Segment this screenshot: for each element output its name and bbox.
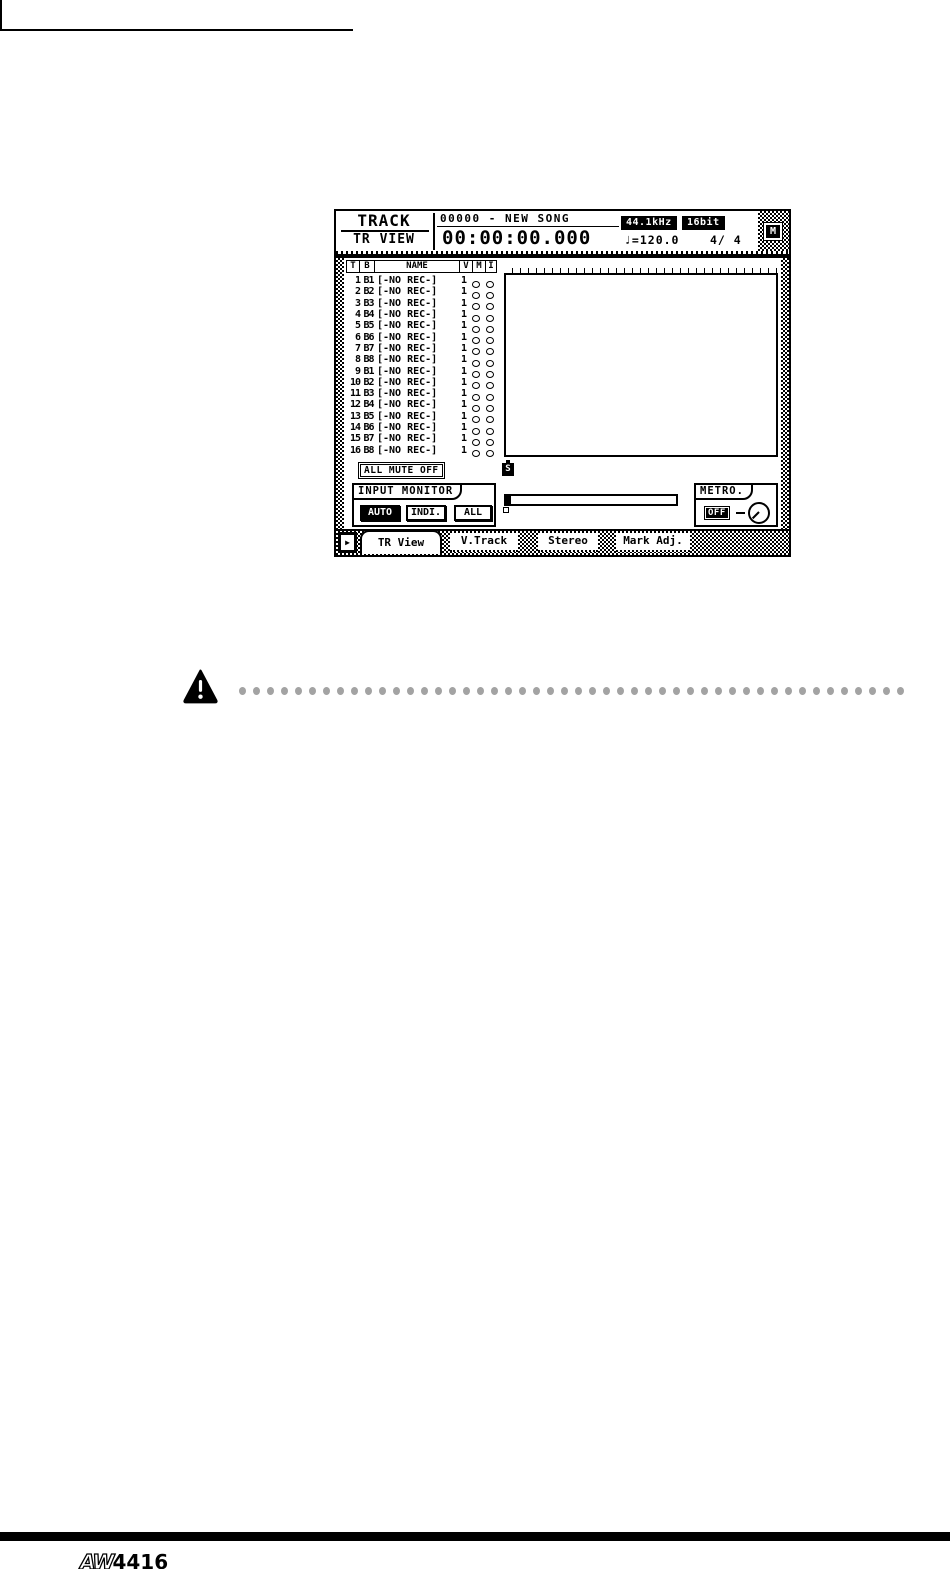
caution-dot [505, 687, 512, 695]
input-circle-icon [486, 281, 494, 288]
track-number: 10 [346, 377, 360, 388]
track-row[interactable]: 9B1[-NO REC-]1 [346, 365, 498, 376]
track-row[interactable]: 5B5[-NO REC-]1 [346, 320, 498, 331]
track-vtrack-number: 1 [461, 399, 469, 410]
track-bus: B3 [360, 298, 377, 309]
track-row[interactable]: 10B2[-NO REC-]1 [346, 377, 498, 388]
mute-circle-icon [472, 405, 480, 412]
tab-trview[interactable]: TR View [360, 530, 442, 554]
input-monitor-auto-button[interactable]: AUTO [360, 505, 400, 521]
track-header-m: M [472, 260, 486, 273]
footer-logo-aw: AW [80, 1550, 112, 1569]
track-vtrack-number: 1 [461, 275, 469, 286]
track-display-area [504, 273, 778, 457]
caution-dot [533, 687, 540, 695]
lcd-screen: TRACK TR VIEW 00000 - NEW SONG 00:00:00.… [334, 209, 791, 557]
track-table-header: TBNAMEVMI [346, 260, 496, 273]
input-circle-icon [486, 428, 494, 435]
track-header-name: NAME [374, 260, 460, 273]
footer-logo: AW4416 [80, 1550, 168, 1569]
track-rows: 1B1[-NO REC-]12B2[-NO REC-]13B3[-NO REC-… [346, 275, 498, 456]
track-number: 6 [346, 332, 360, 343]
manual-page: TRACK TR VIEW 00000 - NEW SONG 00:00:00.… [0, 0, 950, 1569]
metronome-off-label: OFF [706, 508, 728, 518]
caution-dot [785, 687, 792, 695]
track-number: 5 [346, 320, 360, 331]
track-bus: B1 [360, 366, 377, 377]
track-name: [-NO REC-] [377, 399, 461, 410]
track-number: 2 [346, 286, 360, 297]
caution-dot [379, 687, 386, 695]
track-row[interactable]: 16B8[-NO REC-]1 [346, 444, 498, 455]
track-name: [-NO REC-] [377, 298, 461, 309]
caution-dot [547, 687, 554, 695]
track-name: [-NO REC-] [377, 309, 461, 320]
track-bus: B7 [360, 343, 377, 354]
caution-dot [841, 687, 848, 695]
footer-rule-bar [0, 1532, 950, 1541]
track-view-scrollbar[interactable] [504, 494, 678, 506]
track-name: [-NO REC-] [377, 377, 461, 388]
track-vtrack-number: 1 [461, 377, 469, 388]
caution-dot [729, 687, 736, 695]
track-vtrack-number: 1 [461, 388, 469, 399]
track-number: 9 [346, 366, 360, 377]
warning-icon [183, 667, 218, 706]
track-bus: B3 [360, 388, 377, 399]
track-vtrack-number: 1 [461, 366, 469, 377]
track-name: [-NO REC-] [377, 366, 461, 377]
caution-dot [827, 687, 834, 695]
caution-dotted-rule [239, 687, 904, 695]
input-monitor-group: INPUT MONITOR AUTOINDI.ALL [352, 483, 496, 527]
track-header-b: B [359, 260, 375, 273]
caution-dot [267, 687, 274, 695]
page-header-rule-vertical [0, 0, 2, 30]
caution-dot [351, 687, 358, 695]
song-title: 00000 - NEW SONG [440, 213, 570, 225]
track-row[interactable]: 6B6[-NO REC-]1 [346, 331, 498, 342]
track-vtrack-number: 1 [461, 332, 469, 343]
right-dither-strip [781, 258, 789, 529]
caution-dot [771, 687, 778, 695]
track-bus: B4 [360, 309, 377, 320]
metronome-off-button[interactable]: OFF [704, 506, 730, 520]
track-header-t: T [346, 260, 360, 273]
input-monitor-indi-button[interactable]: INDI. [406, 505, 446, 521]
track-number: 15 [346, 433, 360, 444]
track-vtrack-number: 1 [461, 422, 469, 433]
track-number: 16 [346, 445, 360, 456]
caution-dot [309, 687, 316, 695]
input-circle-icon [486, 439, 494, 446]
track-bus: B5 [360, 411, 377, 422]
caution-dot [281, 687, 288, 695]
caution-dot [799, 687, 806, 695]
caution-dot [645, 687, 652, 695]
mute-circle-icon [472, 394, 480, 401]
caution-dot [897, 687, 904, 695]
caution-dot [463, 687, 470, 695]
track-bus: B6 [360, 422, 377, 433]
track-header-i: I [485, 260, 497, 273]
mute-circle-icon [472, 450, 480, 457]
track-number: 1 [346, 275, 360, 286]
track-row[interactable]: 7B7[-NO REC-]1 [346, 343, 498, 354]
track-vtrack-number: 1 [461, 343, 469, 354]
track-name: [-NO REC-] [377, 411, 461, 422]
track-number: 14 [346, 422, 360, 433]
caution-dot [617, 687, 624, 695]
sample-rate-badge: 44.1kHz [621, 216, 677, 230]
caution-dot [659, 687, 666, 695]
caution-dot [757, 687, 764, 695]
input-circle-icon [486, 326, 494, 333]
track-bus: B2 [360, 377, 377, 388]
track-bus: B5 [360, 320, 377, 331]
caution-dot [253, 687, 260, 695]
track-name: [-NO REC-] [377, 354, 461, 365]
caution-dot [239, 687, 246, 695]
tempo-value: ♩=120.0 [624, 233, 679, 247]
track-name: [-NO REC-] [377, 286, 461, 297]
caution-dot [855, 687, 862, 695]
page-group-title: TRACK [336, 212, 432, 230]
metronome-knob[interactable] [748, 502, 770, 524]
header-divider [433, 213, 435, 250]
caution-dot [407, 687, 414, 695]
caution-dot [687, 687, 694, 695]
track-name: [-NO REC-] [377, 320, 461, 331]
mute-circle-icon [472, 360, 480, 367]
input-circle-icon [486, 360, 494, 367]
input-monitor-all-button[interactable]: ALL [454, 505, 492, 521]
track-number: 12 [346, 399, 360, 410]
caution-dot [715, 687, 722, 695]
track-name: [-NO REC-] [377, 275, 461, 286]
caution-dot [589, 687, 596, 695]
caution-dot [673, 687, 680, 695]
track-row[interactable]: 12B4[-NO REC-]1 [346, 399, 498, 410]
start-point-marker[interactable]: S [502, 460, 514, 477]
caution-dot [519, 687, 526, 695]
track-bus: B8 [360, 445, 377, 456]
track-number: 8 [346, 354, 360, 365]
mute-circle-icon [472, 315, 480, 322]
track-row[interactable]: 15B7[-NO REC-]1 [346, 433, 498, 444]
track-bus: B4 [360, 399, 377, 410]
input-circle-icon [486, 292, 494, 299]
caution-dot [393, 687, 400, 695]
page-name-title: TR VIEW [336, 232, 432, 248]
track-vtrack-number: 1 [461, 354, 469, 365]
mute-circle-icon [472, 292, 480, 299]
track-row[interactable]: 4B4[-NO REC-]1 [346, 309, 498, 320]
scrollbar-position-marker [503, 507, 509, 513]
caution-dot [421, 687, 428, 695]
metronome-knob-pointer [752, 511, 760, 519]
track-row[interactable]: 11B3[-NO REC-]1 [346, 388, 498, 399]
mute-circle-icon [472, 281, 480, 288]
track-row[interactable]: 13B5[-NO REC-]1 [346, 411, 498, 422]
caution-dot [295, 687, 302, 695]
track-vtrack-number: 1 [461, 309, 469, 320]
caution-dot [561, 687, 568, 695]
track-row[interactable]: 14B6[-NO REC-]1 [346, 422, 498, 433]
track-name: [-NO REC-] [377, 433, 461, 444]
mute-circle-icon [472, 326, 480, 333]
tab-stereo[interactable]: Stereo [538, 533, 598, 552]
track-bus: B6 [360, 332, 377, 343]
caution-dot [743, 687, 750, 695]
track-bus: B1 [360, 275, 377, 286]
track-number: 4 [346, 309, 360, 320]
caution-dot [813, 687, 820, 695]
left-dither-strip [336, 258, 344, 529]
caution-dot [365, 687, 372, 695]
track-row[interactable]: 1B1[-NO REC-]1 [346, 275, 498, 286]
track-row[interactable]: 3B3[-NO REC-]1 [346, 298, 498, 309]
footer-logo-number: 4416 [112, 1550, 168, 1569]
input-circle-icon [486, 450, 494, 457]
metronome-label: METRO. [694, 483, 753, 500]
track-name: [-NO REC-] [377, 445, 461, 456]
tab-scroll-arrow-icon: ▶ [341, 535, 354, 550]
track-bus: B2 [360, 286, 377, 297]
bit-depth-badge: 16bit [682, 216, 725, 230]
scrollbar-thumb[interactable] [506, 496, 511, 504]
header-separator-bar [336, 254, 789, 258]
caution-dot [491, 687, 498, 695]
caution-dot [435, 687, 442, 695]
caution-dot [449, 687, 456, 695]
midi-indicator-icon: M [764, 223, 782, 240]
time-counter: 00:00:00.000 [442, 227, 591, 249]
input-monitor-label: INPUT MONITOR [352, 483, 462, 500]
caution-dot [883, 687, 890, 695]
mute-circle-icon [472, 428, 480, 435]
tab-markadj[interactable]: Mark Adj. [616, 533, 690, 552]
track-vtrack-number: 1 [461, 433, 469, 444]
mute-circle-icon [472, 439, 480, 446]
caution-dot [603, 687, 610, 695]
track-row[interactable]: 8B8[-NO REC-]1 [346, 354, 498, 365]
all-mute-off-button[interactable]: ALL MUTE OFF [358, 462, 445, 479]
caution-dot [701, 687, 708, 695]
all-mute-off-label: ALL MUTE OFF [360, 464, 443, 477]
caution-dot [477, 687, 484, 695]
input-circle-icon [486, 371, 494, 378]
mute-circle-icon [472, 371, 480, 378]
track-name: [-NO REC-] [377, 332, 461, 343]
caution-dot [631, 687, 638, 695]
track-header-v: V [459, 260, 473, 273]
track-vtrack-number: 1 [461, 411, 469, 422]
track-bus: B8 [360, 354, 377, 365]
track-name: [-NO REC-] [377, 343, 461, 354]
track-vtrack-number: 1 [461, 286, 469, 297]
caution-dot [869, 687, 876, 695]
input-circle-icon [486, 405, 494, 412]
metronome-dash [736, 512, 745, 514]
header-dither-strip: M [758, 211, 789, 251]
caution-dot [575, 687, 582, 695]
input-circle-icon [486, 315, 494, 322]
input-circle-icon [486, 394, 494, 401]
start-point-marker-label: S [502, 463, 514, 476]
track-number: 11 [346, 388, 360, 399]
track-vtrack-number: 1 [461, 445, 469, 456]
track-number: 7 [346, 343, 360, 354]
track-row[interactable]: 2B2[-NO REC-]1 [346, 286, 498, 297]
caution-dot [323, 687, 330, 695]
track-number: 13 [346, 411, 360, 422]
caution-dot [337, 687, 344, 695]
track-number: 3 [346, 298, 360, 309]
tab-scroll-button[interactable]: ▶ [338, 532, 357, 553]
metronome-group: METRO. OFF [694, 483, 778, 527]
page-header-rule-horizontal [0, 29, 353, 31]
track-vtrack-number: 1 [461, 320, 469, 331]
track-vtrack-number: 1 [461, 298, 469, 309]
tab-vtrack[interactable]: V.Track [450, 533, 518, 552]
track-name: [-NO REC-] [377, 422, 461, 433]
time-signature: 4/ 4 [710, 233, 742, 247]
track-bus: B7 [360, 433, 377, 444]
track-name: [-NO REC-] [377, 388, 461, 399]
